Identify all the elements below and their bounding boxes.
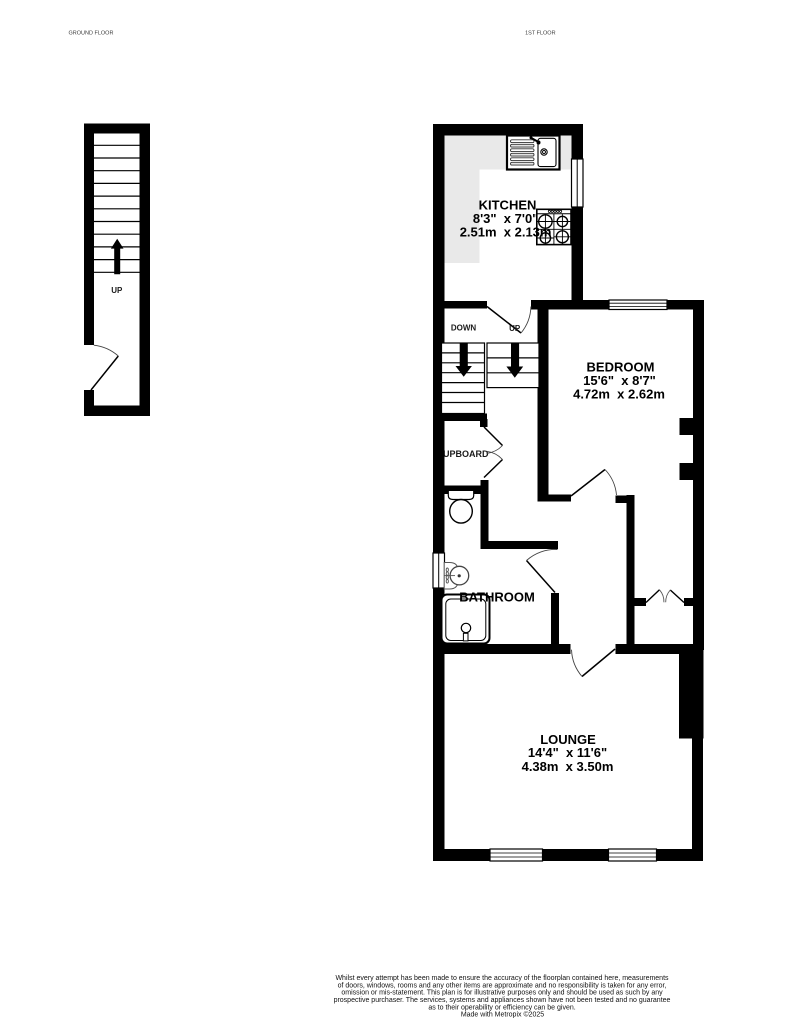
svg-text:BATHROOM: BATHROOM	[459, 590, 535, 605]
svg-text:UP: UP	[111, 286, 123, 295]
svg-text:Made with Metropix ©2025: Made with Metropix ©2025	[461, 1011, 544, 1019]
svg-text:Whilst every attempt has been: Whilst every attempt has been made to en…	[335, 975, 669, 982]
svg-text:UP: UP	[509, 324, 521, 333]
svg-text:2.51m x 2.13m: 2.51m x 2.13m	[460, 225, 552, 240]
svg-text:prospective purchaser. The ser: prospective purchaser. The services, sys…	[334, 997, 671, 1004]
svg-text:4.72m x 2.62m: 4.72m x 2.62m	[573, 387, 665, 402]
svg-text:DOWN: DOWN	[451, 324, 477, 333]
svg-text:of doors, windows, rooms and a: of doors, windows, rooms and any other i…	[338, 982, 667, 989]
svg-text:1ST FLOOR: 1ST FLOOR	[525, 31, 555, 37]
svg-text:omission or mis-statement. Thi: omission or mis-statement. This plan is …	[341, 990, 663, 997]
svg-text:4.38m x 3.50m: 4.38m x 3.50m	[522, 759, 614, 774]
svg-text:as to their operability or eff: as to their operability or efficiency ca…	[428, 1004, 575, 1011]
svg-text:GROUND FLOOR: GROUND FLOOR	[69, 31, 114, 37]
